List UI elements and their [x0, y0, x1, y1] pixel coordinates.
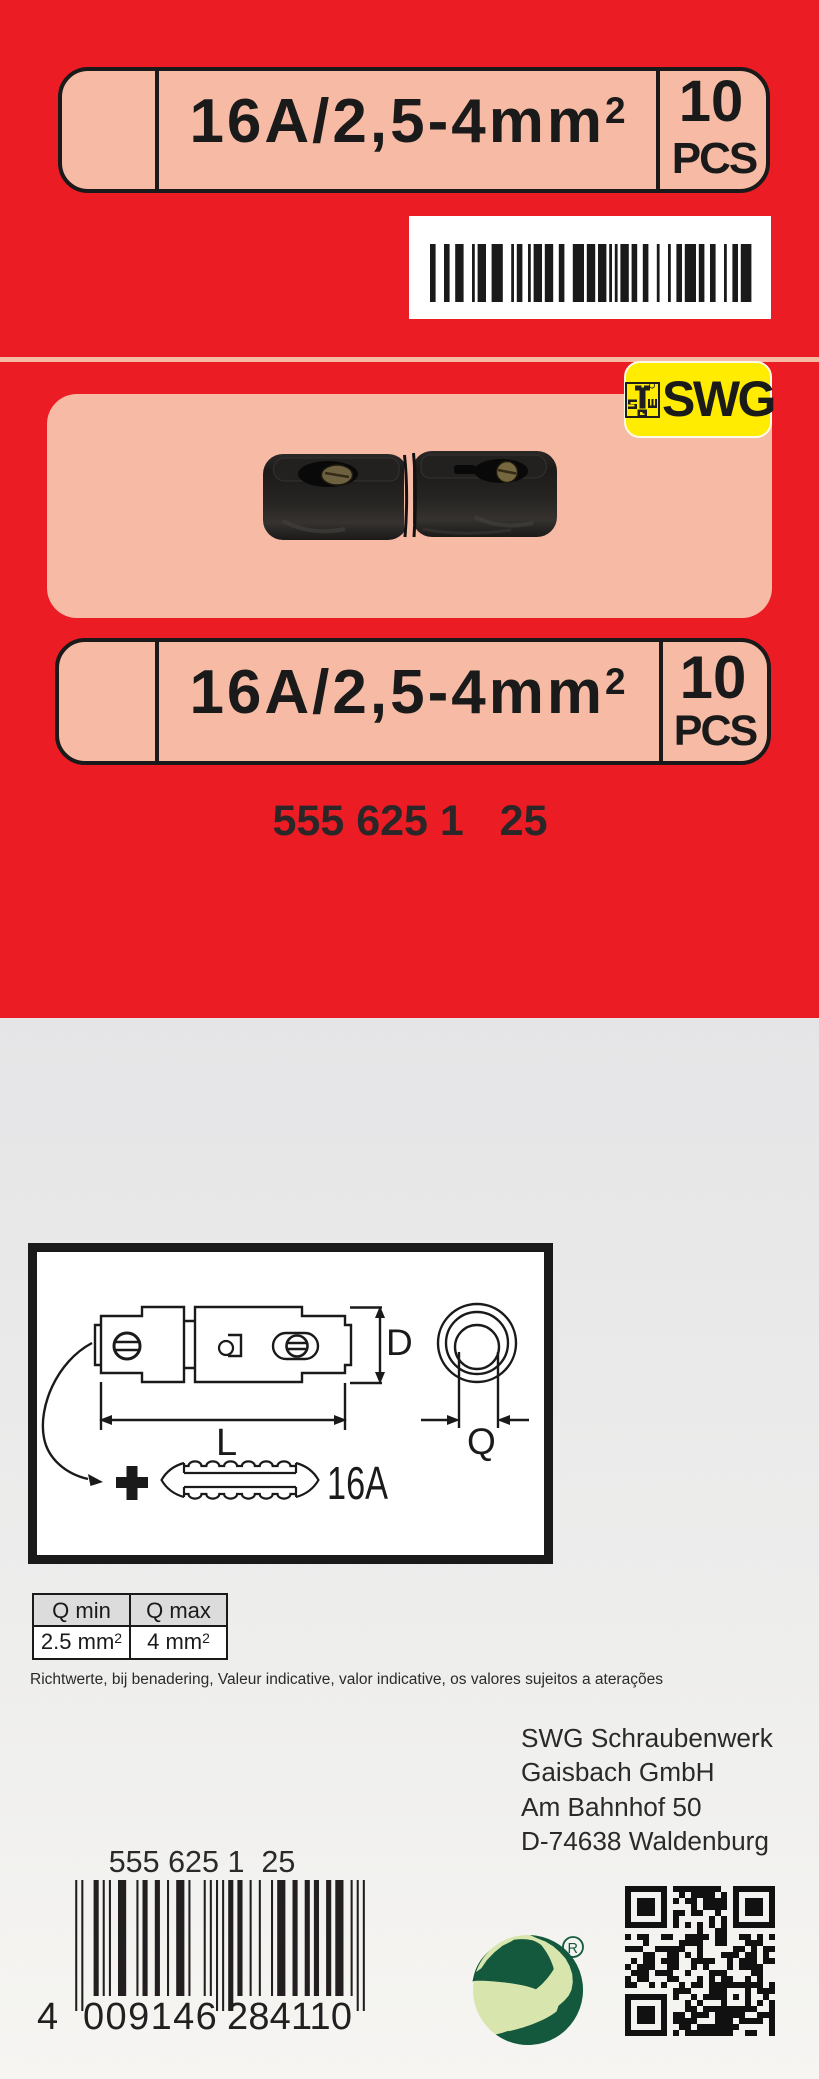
- svg-text:16A: 16A: [327, 1457, 388, 1509]
- svg-text:D: D: [386, 1322, 413, 1363]
- svg-text:Q: Q: [467, 1421, 496, 1462]
- svg-text:L: L: [216, 1422, 237, 1464]
